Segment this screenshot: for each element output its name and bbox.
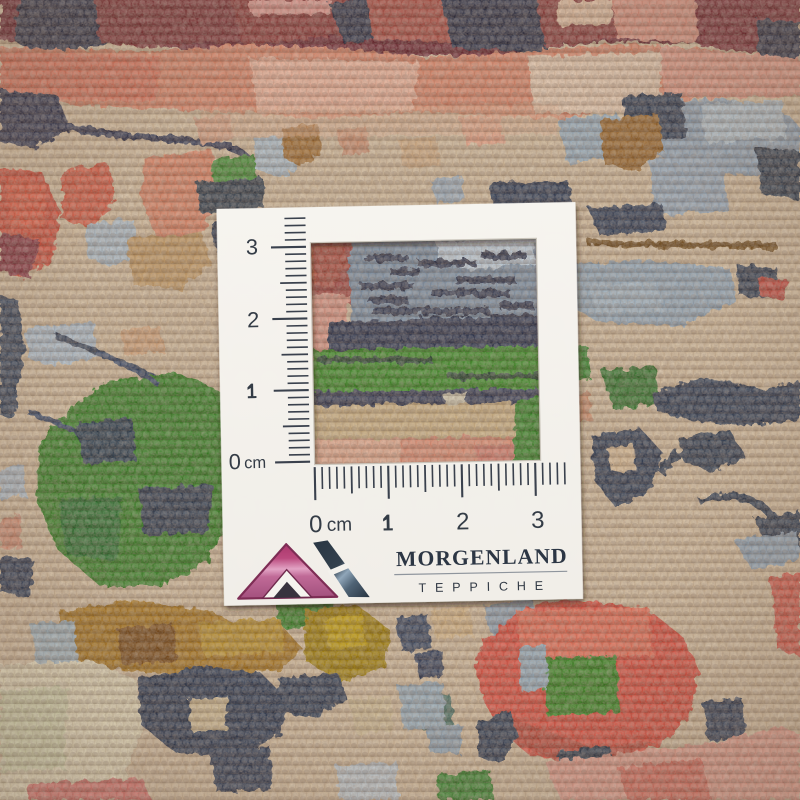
svg-text:cm: cm bbox=[327, 514, 353, 535]
svg-text:cm: cm bbox=[244, 454, 266, 472]
svg-text:3: 3 bbox=[246, 234, 259, 259]
svg-text:0: 0 bbox=[228, 449, 241, 474]
svg-text:TEPPICHE: TEPPICHE bbox=[418, 579, 552, 596]
svg-text:2: 2 bbox=[456, 508, 470, 535]
svg-text:3: 3 bbox=[531, 507, 545, 534]
svg-text:0: 0 bbox=[309, 511, 323, 538]
svg-text:MORGENLAND: MORGENLAND bbox=[396, 544, 568, 571]
svg-text:2: 2 bbox=[247, 307, 260, 332]
